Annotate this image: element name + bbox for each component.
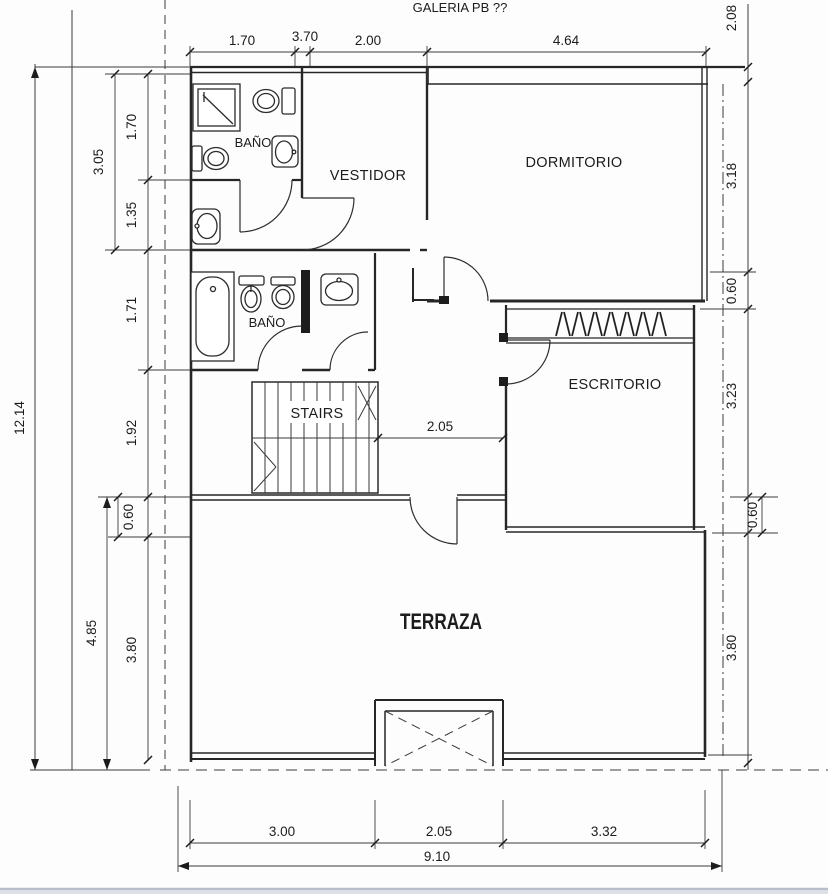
dimensions-top: 1.70 3.70 2.00 4.64 [186,29,710,83]
dim-right-5: 3.80 [724,635,739,661]
dim-right-1: 3.18 [724,163,739,189]
door-arc-dormitorio [444,257,488,301]
dim-hall: 2.05 [427,419,453,434]
dim-right-4: 0.60 [745,502,760,528]
dim-right-2: 0.60 [724,278,739,304]
dim-left-2: 1.35 [124,202,139,228]
door-arc-sinkroom [302,198,354,250]
sink-icon [272,136,298,167]
room-label-vestidor: VESTIDOR [330,168,407,184]
dimensions-left: 12.14 3.05 1.70 1.35 1.71 1.92 0.60 4.85… [12,64,190,770]
shower-icon [193,84,240,131]
sink-icon [321,274,358,305]
room-label-bano-1: BAÑO [235,135,272,150]
toilet-icon [271,277,295,309]
plan-title: GALERIA PB ?? [413,0,508,15]
room-label-terraza: TERRAZA [400,609,482,634]
door-arc-bath2 [258,326,302,370]
floor-plan: 1.70 3.70 2.00 4.64 12.14 3.05 1.70 1.35… [0,0,828,894]
room-label-dormitorio: DORMITORIO [526,155,623,171]
door-arc-escritorio [506,340,550,384]
bathtub-icon [191,272,234,361]
toilet-icon [192,146,229,171]
closet-hatch [556,312,666,336]
dim-bottom-total: 9.10 [424,849,450,864]
dim-left-6: 4.85 [84,620,99,646]
dimensions-right: 2.08 3.18 0.60 3.23 0.60 3.80 [700,5,778,767]
dim-left-0: 3.05 [91,149,106,175]
dim-left-total: 12.14 [12,401,27,435]
dim-left-7: 3.80 [124,637,139,663]
door-arc-bath1 [240,180,292,232]
door-arc-wc [330,332,368,370]
dim-left-5: 0.60 [121,504,136,530]
room-label-escritorio: ESCRITORIO [569,377,662,393]
dim-top-0: 1.70 [229,33,255,48]
dim-left-4: 1.92 [124,420,139,446]
dim-right-3: 3.23 [724,383,739,409]
floor-plan-drawing: 1.70 3.70 2.00 4.64 12.14 3.05 1.70 1.35… [0,0,828,894]
bidet-icon [239,276,264,312]
room-label-bano-2: BAÑO [249,315,286,330]
toilet-icon [253,88,295,114]
dim-right-0: 2.08 [724,5,739,31]
dimensions-bottom: 3.00 2.05 3.32 9.10 [178,770,722,872]
sink-icon [192,209,220,244]
dim-left-1: 1.70 [124,114,139,140]
dim-top-2: 2.00 [355,33,381,48]
dim-top-1: 3.70 [292,29,318,44]
dim-top-3: 4.64 [553,33,580,48]
dim-left-3: 1.71 [124,297,139,323]
dim-bottom-2: 3.32 [591,824,617,839]
door-arc-terraza [410,497,457,544]
dim-bottom-0: 3.00 [269,824,295,839]
dim-bottom-1: 2.05 [426,824,452,839]
room-label-stairs: STAIRS [290,406,343,422]
void-opening [375,700,503,766]
